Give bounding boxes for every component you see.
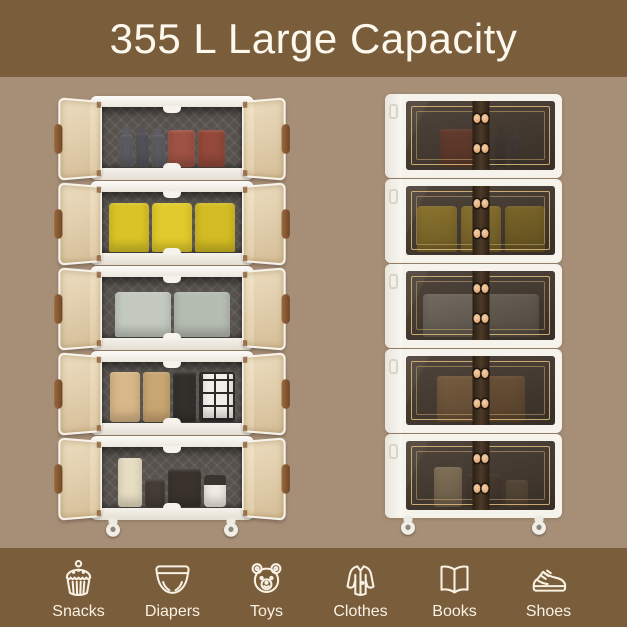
stored-item bbox=[110, 372, 140, 422]
tier-glass-doors bbox=[406, 186, 555, 255]
door-handle bbox=[54, 464, 62, 494]
stored-item bbox=[145, 479, 165, 507]
lid-clasp bbox=[163, 361, 181, 368]
magnet-button bbox=[481, 114, 488, 123]
floor-shadow bbox=[76, 531, 268, 543]
magnet-button bbox=[473, 199, 480, 208]
magnet-button bbox=[473, 399, 480, 408]
stored-item bbox=[118, 458, 142, 507]
cabinet-closed-view bbox=[385, 94, 562, 519]
caster-wheel bbox=[224, 523, 238, 537]
lid-clasp bbox=[163, 191, 181, 198]
stored-item bbox=[120, 134, 133, 167]
open-door-left bbox=[58, 182, 102, 265]
stored-item bbox=[152, 203, 192, 252]
door-handle bbox=[282, 209, 290, 239]
lid-clasp bbox=[163, 163, 181, 169]
side-handle-slot bbox=[389, 104, 398, 119]
stored-item bbox=[136, 132, 149, 167]
hinge-strip bbox=[472, 186, 489, 255]
tier-glass-doors bbox=[406, 356, 555, 425]
hinge-strip bbox=[472, 101, 489, 170]
caster-wheel bbox=[532, 521, 546, 535]
magnet-button bbox=[481, 369, 488, 378]
magnet-button bbox=[481, 199, 488, 208]
tier-glass-doors bbox=[406, 271, 555, 340]
open-cabinet-tier-1 bbox=[90, 96, 254, 180]
caster-wheel bbox=[106, 523, 120, 537]
open-cabinet-tier-4 bbox=[90, 351, 254, 435]
tier-interior bbox=[100, 362, 244, 423]
lid-clasp bbox=[163, 503, 181, 509]
open-door-right bbox=[242, 267, 286, 350]
tier-interior bbox=[100, 277, 244, 338]
category-shoes: Shoes bbox=[502, 557, 596, 621]
open-cabinet-tier-3 bbox=[90, 266, 254, 350]
teddy-bear-icon bbox=[245, 557, 288, 600]
category-icon-row: Snacks Diapers Toys bbox=[0, 548, 627, 627]
side-panel bbox=[385, 179, 402, 263]
closed-cabinet-tier-1 bbox=[385, 94, 562, 179]
stored-item bbox=[204, 476, 226, 507]
stored-item bbox=[168, 469, 201, 507]
magnet-button bbox=[481, 399, 488, 408]
category-label: Books bbox=[432, 603, 476, 621]
side-handle-slot bbox=[389, 444, 398, 459]
magnet-button bbox=[481, 284, 488, 293]
closed-cabinet-tier-3 bbox=[385, 264, 562, 349]
cabinet-open-view bbox=[90, 96, 254, 521]
category-snacks: Snacks bbox=[32, 557, 126, 621]
side-panel bbox=[385, 94, 402, 178]
tier-interior bbox=[100, 107, 244, 168]
stored-item bbox=[199, 372, 235, 422]
lid-clasp bbox=[163, 248, 181, 254]
magnet-button bbox=[473, 484, 480, 493]
open-cabinet-tier-2 bbox=[90, 181, 254, 265]
side-panel bbox=[385, 264, 402, 348]
title-banner: 355 L Large Capacity bbox=[0, 0, 627, 77]
lid-clasp bbox=[163, 333, 181, 339]
side-handle-slot bbox=[389, 189, 398, 204]
stored-item bbox=[173, 372, 196, 422]
lid-clasp bbox=[163, 106, 181, 113]
closed-cabinet-tier-5 bbox=[385, 434, 562, 519]
open-door-left bbox=[58, 352, 102, 435]
stored-item bbox=[198, 130, 225, 167]
side-panel bbox=[385, 349, 402, 433]
category-label: Shoes bbox=[526, 603, 571, 621]
category-label: Snacks bbox=[52, 603, 104, 621]
closed-cabinet-tier-2 bbox=[385, 179, 562, 264]
open-cabinet-tier-5 bbox=[90, 436, 254, 520]
tier-interior bbox=[100, 192, 244, 253]
product-infographic: 355 L Large Capacity Snacks Di bbox=[0, 0, 627, 627]
tier-glass-doors bbox=[406, 441, 555, 510]
door-handle bbox=[282, 464, 290, 494]
open-door-left bbox=[58, 267, 102, 350]
door-handle bbox=[54, 379, 62, 409]
hinge-strip bbox=[472, 271, 489, 340]
magnet-button bbox=[481, 229, 488, 238]
category-label: Clothes bbox=[333, 603, 387, 621]
magnet-button bbox=[481, 484, 488, 493]
magnet-button bbox=[473, 144, 480, 153]
door-handle bbox=[282, 294, 290, 324]
stored-item bbox=[195, 203, 235, 252]
magnet-button bbox=[473, 454, 480, 463]
hinge-strip bbox=[472, 441, 489, 510]
magnet-button bbox=[473, 314, 480, 323]
hinge-strip bbox=[472, 356, 489, 425]
stored-item bbox=[143, 372, 170, 422]
door-handle bbox=[54, 209, 62, 239]
side-handle-slot bbox=[389, 359, 398, 374]
category-clothes: Clothes bbox=[314, 557, 408, 621]
cupcake-icon bbox=[57, 557, 100, 600]
open-door-left bbox=[58, 97, 102, 180]
magnet-button bbox=[473, 229, 480, 238]
tier-glass-doors bbox=[406, 101, 555, 170]
open-door-left bbox=[58, 437, 102, 520]
open-book-icon bbox=[433, 557, 476, 600]
stored-item bbox=[168, 130, 195, 167]
magnet-button bbox=[481, 144, 488, 153]
magnet-button bbox=[473, 369, 480, 378]
sneaker-icon bbox=[527, 557, 570, 600]
lid-clasp bbox=[163, 276, 181, 283]
side-handle-slot bbox=[389, 274, 398, 289]
stored-item bbox=[174, 292, 230, 337]
magnet-button bbox=[473, 114, 480, 123]
category-books: Books bbox=[408, 557, 502, 621]
magnet-button bbox=[481, 454, 488, 463]
open-door-right bbox=[242, 437, 286, 520]
diaper-icon bbox=[151, 557, 194, 600]
magnet-button bbox=[473, 284, 480, 293]
door-handle bbox=[54, 124, 62, 154]
category-diapers: Diapers bbox=[126, 557, 220, 621]
stored-item bbox=[115, 292, 171, 337]
closed-cabinet-tier-4 bbox=[385, 349, 562, 434]
tier-base bbox=[90, 338, 254, 350]
tier-base bbox=[90, 253, 254, 265]
page-title: 355 L Large Capacity bbox=[110, 15, 518, 63]
open-door-right bbox=[242, 97, 286, 180]
door-handle bbox=[282, 379, 290, 409]
caster-wheel bbox=[401, 521, 415, 535]
tier-interior bbox=[100, 447, 244, 508]
magnet-button bbox=[481, 314, 488, 323]
side-panel bbox=[385, 434, 402, 518]
category-label: Diapers bbox=[145, 603, 200, 621]
open-door-right bbox=[242, 352, 286, 435]
lid-clasp bbox=[163, 418, 181, 424]
door-handle bbox=[54, 294, 62, 324]
tier-base bbox=[90, 168, 254, 180]
category-label: Toys bbox=[250, 603, 283, 621]
open-door-right bbox=[242, 182, 286, 265]
stored-item bbox=[109, 203, 149, 252]
tier-base bbox=[90, 423, 254, 435]
stored-item bbox=[152, 134, 165, 167]
lid-clasp bbox=[163, 446, 181, 453]
door-handle bbox=[282, 124, 290, 154]
category-toys: Toys bbox=[220, 557, 314, 621]
coat-icon bbox=[339, 557, 382, 600]
